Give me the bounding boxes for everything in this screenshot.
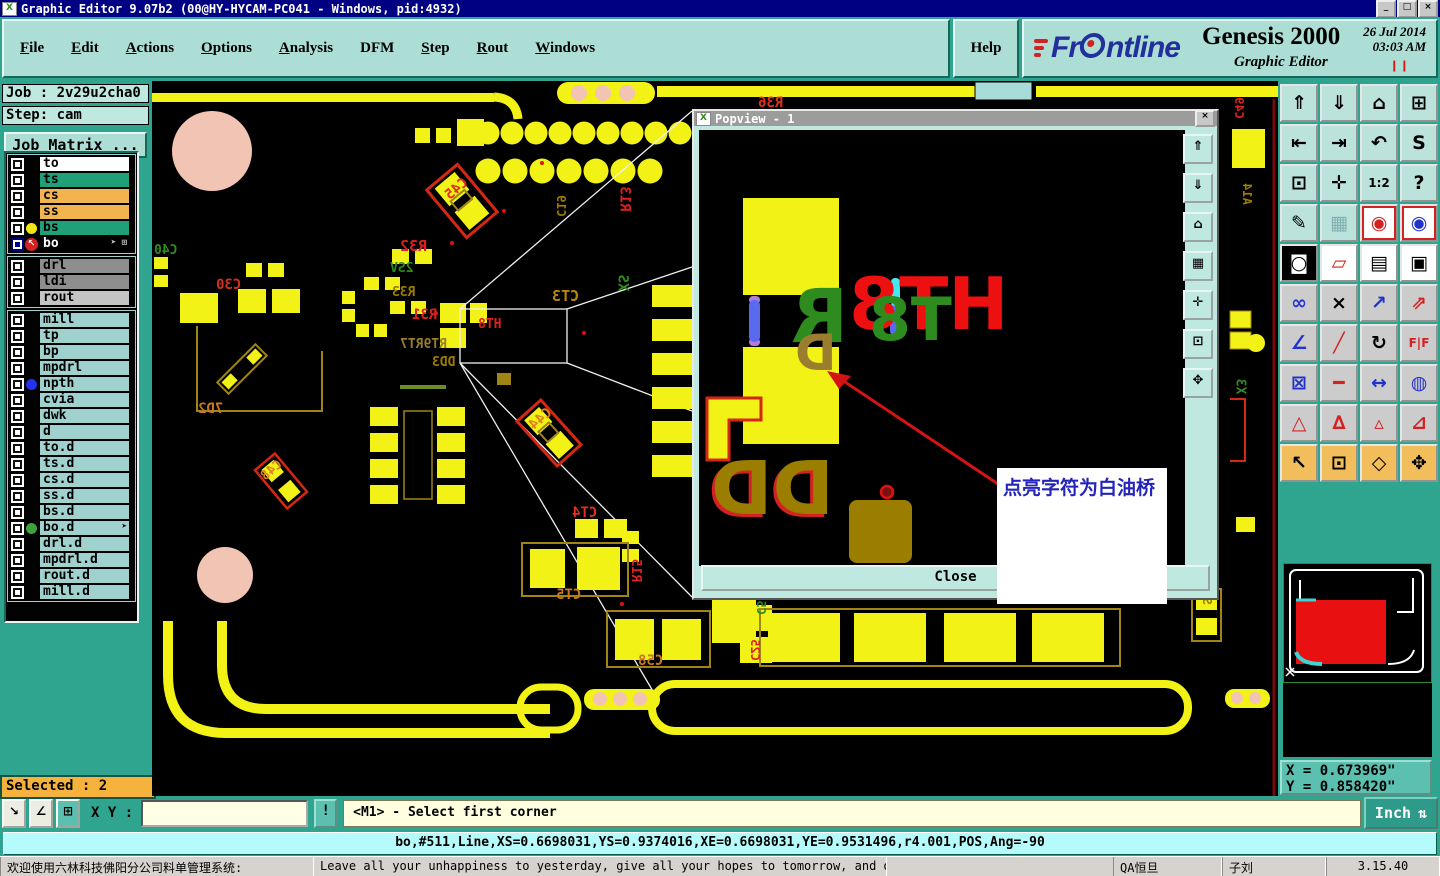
layer-row-ts: ts: [8, 172, 135, 188]
layer-dot-slot: [24, 206, 39, 219]
silkscreen-label-R33: R33: [392, 285, 415, 300]
tool-arc-mode-1[interactable]: △: [1280, 404, 1318, 442]
tool-slope-line[interactable]: ╱: [1320, 324, 1358, 362]
layer-checkbox-drl.d[interactable]: [11, 538, 24, 551]
layer-checkbox-drl[interactable]: [11, 260, 24, 273]
status-row: bo,#511,Line,XS=0.6698031,YS=0.9374016,X…: [0, 830, 1440, 856]
tool-pv-zoom-box[interactable]: ⊡: [1183, 329, 1213, 359]
layer-row-mill.d: mill.d: [8, 584, 135, 600]
tool-select-window[interactable]: ⊡: [1320, 444, 1358, 482]
tool-swap-pads[interactable]: ⊠: [1280, 364, 1318, 402]
layer-checkbox-d[interactable]: [11, 426, 24, 439]
tool-context-help[interactable]: ?: [1400, 164, 1438, 202]
layer-dot-slot: [24, 410, 39, 423]
silkscreen-label-C40: C40: [154, 243, 177, 258]
layer-checkbox-to[interactable]: [11, 158, 24, 171]
layer-name-bs[interactable]: bs: [39, 220, 130, 236]
layer-dot-slot: [24, 394, 39, 407]
work-layer-icon: ↖: [24, 238, 39, 251]
coord-x: X = 0.673969": [1286, 763, 1426, 779]
layer-group: totscsssbs↖bo➤ ⊞: [7, 154, 136, 254]
layer-name-drl[interactable]: drl: [39, 258, 130, 274]
tool-chain-select[interactable]: ∞: [1280, 284, 1318, 322]
layer-dot-slot: [24, 190, 39, 203]
layer-dot-slot: [24, 474, 39, 487]
tool-serpentine-view[interactable]: S: [1400, 124, 1438, 162]
element-status-line: bo,#511,Line,XS=0.6698031,YS=0.9374016,X…: [3, 832, 1437, 855]
layer-checkbox-mpdrl.d[interactable]: [11, 554, 24, 567]
tool-pan-right[interactable]: ⇥: [1320, 124, 1358, 162]
layer-name-bo[interactable]: bo➤ ⊞: [39, 236, 130, 252]
brand-panel: Frntline Genesis 2000 Graphic Editor 26 …: [1022, 19, 1438, 78]
tool-inverse-video[interactable]: ◙: [1280, 244, 1318, 282]
popview-window[interactable]: X Popview - 1 ×: [692, 109, 1219, 600]
tool-pan-left[interactable]: ⇤: [1280, 124, 1318, 162]
layer-checkbox-ldi[interactable]: [11, 276, 24, 289]
tool-delete-element[interactable]: ×: [1320, 284, 1358, 322]
layer-dot-slot: [24, 174, 39, 187]
layer-checkbox-ss.d[interactable]: [11, 490, 24, 503]
tool-tile-windows-xy[interactable]: ⊞: [1400, 84, 1438, 122]
layer-row-cs.d: cs.d: [8, 472, 135, 488]
silkscreen-label-C49: C49: [1232, 97, 1246, 119]
layer-dot-slot: [24, 314, 39, 327]
layer-dot-slot: [24, 554, 39, 567]
layer-row-to: to: [8, 156, 135, 172]
layer-name-to[interactable]: to: [39, 156, 130, 172]
board-minimap[interactable]: [1283, 563, 1432, 683]
layer-checkbox-ss[interactable]: [11, 206, 24, 219]
taskbar-segment-2[interactable]: 子刘: [1222, 857, 1326, 876]
silkscreen-label-C19: C19: [554, 195, 568, 217]
tool-setup-editor[interactable]: ✎: [1280, 204, 1318, 242]
taskbar-segment-1[interactable]: QA恒旦: [1113, 857, 1222, 876]
tool-net-view-a[interactable]: ◉: [1360, 204, 1398, 242]
popview-art-text: DD: [711, 452, 834, 526]
popview-art-text: T8: [869, 290, 952, 350]
layer-dot-slot: [24, 292, 39, 305]
graphic-editor-window: X Graphic Editor 9.07b2 (00@HY-HYCAM-PC0…: [0, 0, 1440, 876]
tool-zoom-margins[interactable]: ⊡: [1280, 164, 1318, 202]
layer-name-mill[interactable]: mill: [39, 312, 130, 328]
cursor-coordinates: X = 0.673969" Y = 0.858420": [1280, 760, 1432, 795]
taskbar-quote: Leave all your unhappiness to yesterday,…: [314, 857, 887, 876]
tool-grid: ⇑⇓⌂⊞⇤⇥↶S⊡✛1:2?✎▦◉◉◙▱▤▣∞×↗⇗∠╱↻F|F⊠━↔◍△∆▵⊿…: [1279, 83, 1439, 483]
taskbar-clock: 3.15.40: [1326, 857, 1440, 876]
silkscreen-label-R13: R13: [617, 186, 633, 211]
layer-dot-slot: [24, 458, 39, 471]
app-icon: X: [2, 2, 17, 16]
layer-checkbox-rout.d[interactable]: [11, 570, 24, 583]
menu-items: FileEditActionsOptionsAnalysisDFMStepRou…: [2, 19, 950, 78]
layer-row-bo.d: bo.d➤: [8, 520, 135, 536]
pause-indicator-icon: ❙❙: [1390, 59, 1410, 72]
logo-speed-lines-icon: [1034, 39, 1048, 57]
layer-checkbox-rout[interactable]: [11, 292, 24, 305]
layer-name-npth[interactable]: npth: [39, 376, 130, 392]
tool-copy-element[interactable]: ↗: [1360, 284, 1398, 322]
tool-arc-mode-4[interactable]: ⊿: [1400, 404, 1438, 442]
layer-name-mpdrl[interactable]: mpdrl: [39, 360, 130, 376]
layer-row-bp: bp: [8, 344, 135, 360]
silkscreen-label-CT3: CT3: [552, 287, 579, 305]
layer-name-drl.d[interactable]: drl.d: [39, 536, 130, 552]
layer-checkbox-ts.d[interactable]: [11, 458, 24, 471]
menu-help[interactable]: Help: [953, 19, 1019, 78]
layer-row-drl.d: drl.d: [8, 536, 135, 552]
layer-dot-slot: [24, 426, 39, 439]
tool-pan-center[interactable]: ✛: [1320, 164, 1358, 202]
sidebar: Job : 2v29u2cha0 Step: cam Job Matrix ..…: [0, 81, 152, 796]
title-bar: X Graphic Editor 9.07b2 (00@HY-HYCAM-PC0…: [0, 0, 1440, 17]
mode-grid-mode[interactable]: ⊞: [56, 799, 80, 828]
pcb-canvas[interactable]: R36C45C40C30R322SVR33R31CT3C19R13XSHT8RT…: [152, 81, 1278, 796]
units-arrow-icon: ⇅: [1418, 804, 1427, 822]
layer-row-drl: drl: [8, 258, 135, 274]
layer-row-bs.d: bs.d: [8, 504, 135, 520]
tool-measure-angle[interactable]: ∠: [1280, 324, 1318, 362]
mode-angle-mode[interactable]: ∠: [29, 799, 53, 828]
silkscreen-label-CT5: CT5: [556, 587, 581, 603]
layer-row-ldi: ldi: [8, 274, 135, 290]
layer-row-ss.d: ss.d: [8, 488, 135, 504]
silkscreen-label-DD3: DD3: [432, 355, 455, 370]
tool-merge-shapes[interactable]: ◍: [1400, 364, 1438, 402]
silkscreen-label-C58: C58: [638, 653, 663, 669]
tool-scale-1-2[interactable]: 1:2: [1360, 164, 1398, 202]
tool-reshape[interactable]: ▱: [1320, 244, 1358, 282]
layer-dot-slot: [24, 506, 39, 519]
tool-view-copy-up[interactable]: ⇑: [1280, 84, 1318, 122]
layer-row-d: d: [8, 424, 135, 440]
os-taskbar: 欢迎使用六林科技佛阳分公司料单管理系统: Leave all your unha…: [0, 856, 1440, 876]
silkscreen-label-R32: R32: [400, 237, 427, 255]
layer-name-cs.d[interactable]: cs.d: [39, 472, 130, 488]
xy-input[interactable]: [141, 800, 308, 827]
layer-row-cvia: cvia: [8, 392, 135, 408]
selected-count: Selected : 2: [0, 775, 156, 799]
menu-options[interactable]: Options: [201, 40, 252, 57]
layer-row-cs: cs: [8, 188, 135, 204]
layer-name-ss.d[interactable]: ss.d: [39, 488, 130, 504]
layer-row-rout: rout: [8, 290, 135, 306]
layer-dot-slot: [24, 538, 39, 551]
popview-close-icon[interactable]: ×: [1195, 110, 1215, 127]
silkscreen-label-7D2: 7D2: [198, 401, 223, 417]
layer-checkbox-bo.d[interactable]: [11, 522, 24, 535]
layer-group: drlldirout: [7, 256, 136, 308]
layer-dot-slot: [24, 346, 39, 359]
layer-row-bs: bs: [8, 220, 135, 236]
mode-buttons: ↘∠⊞: [2, 799, 80, 828]
right-toolbar: ⇑⇓⌂⊞⇤⇥↶S⊡✛1:2?✎▦◉◉◙▱▤▣∞×↗⇗∠╱↻F|F⊠━↔◍△∆▵⊿…: [1278, 81, 1440, 796]
layer-name-tp[interactable]: tp: [39, 328, 130, 344]
tool-previous-view[interactable]: ↶: [1360, 124, 1398, 162]
layer-checkbox-npth[interactable]: [11, 378, 24, 391]
silkscreen-label-C25: C25: [748, 639, 762, 661]
tool-pad-display[interactable]: ▣: [1400, 244, 1438, 282]
menu-step[interactable]: Step: [421, 40, 449, 57]
popview-icon: X: [696, 112, 711, 126]
command-row: ↘∠⊞ X Y : ! <M1> - Select first corner I…: [0, 796, 1440, 830]
layer-name-mpdrl.d[interactable]: mpdrl.d: [39, 552, 130, 568]
silkscreen-label-C30: C30: [216, 277, 241, 293]
job-label: Job : 2v29u2cha0: [2, 84, 149, 103]
layer-checkbox-bo[interactable]: [11, 238, 24, 251]
overview-panel: [1283, 563, 1432, 757]
menu-windows[interactable]: Windows: [535, 40, 595, 57]
layer-dot-slot: [24, 260, 39, 273]
tool-arc-mode-2[interactable]: ∆: [1320, 404, 1358, 442]
tool-move-element[interactable]: ⇗: [1400, 284, 1438, 322]
tool-pv-copy-down[interactable]: ⇓: [1183, 173, 1213, 203]
layer-dot-slot: [24, 490, 39, 503]
menu-edit[interactable]: Edit: [71, 40, 99, 57]
layer-name-rout[interactable]: rout: [39, 290, 130, 306]
layer-name-to.d[interactable]: to.d: [39, 440, 130, 456]
layer-name-bs.d[interactable]: bs.d: [39, 504, 130, 520]
units-button[interactable]: Inch⇅: [1364, 797, 1438, 829]
silkscreen-label-X3: X3: [1232, 379, 1247, 395]
layer-name-ss[interactable]: ss: [39, 204, 130, 220]
layer-row-rout.d: rout.d: [8, 568, 135, 584]
tool-ruler[interactable]: ▤: [1360, 244, 1398, 282]
silkscreen-label-2SV: 2SV: [390, 261, 413, 276]
maximize-button[interactable]: □: [1397, 0, 1417, 18]
popview-side-toolbar: ⇑⇓⌂▦✛⊡✥: [1183, 134, 1213, 398]
tool-pv-home[interactable]: ⌂: [1183, 212, 1213, 242]
frontline-logo: Frntline: [1034, 31, 1180, 65]
layer-row-ss: ss: [8, 204, 135, 220]
coord-y: Y = 0.858420": [1286, 779, 1426, 795]
step-label: Step: cam: [2, 106, 149, 125]
tool-view-copy-down[interactable]: ⇓: [1320, 84, 1358, 122]
layer-checkbox-bp[interactable]: [11, 346, 24, 359]
silkscreen-label-RT9RT7: RT9RT7: [400, 337, 447, 352]
layer-row-icons: ➤: [122, 521, 127, 534]
layer-row-to.d: to.d: [8, 440, 135, 456]
layer-name-bp[interactable]: bp: [39, 344, 130, 360]
menu-file[interactable]: File: [20, 40, 44, 57]
popview-title: Popview - 1: [715, 112, 794, 126]
popview-title-bar[interactable]: X Popview - 1 ×: [694, 111, 1217, 126]
silkscreen-label-HT8: HT8: [478, 317, 501, 332]
tool-measure-distance[interactable]: ↔: [1360, 364, 1398, 402]
layer-row-tp: tp: [8, 328, 135, 344]
layer-row-mill: mill: [8, 312, 135, 328]
layer-checkbox-mill.d[interactable]: [11, 586, 24, 599]
tool-snap-grid[interactable]: ▦: [1320, 204, 1358, 242]
product-name: Genesis 2000: [1202, 23, 1340, 51]
layer-checkbox-bs.d[interactable]: [11, 506, 24, 519]
tool-break-line[interactable]: ━: [1320, 364, 1358, 402]
layer-checkbox-ts[interactable]: [11, 174, 24, 187]
layer-dot-icon: [24, 222, 39, 235]
tool-select-single[interactable]: ↖: [1280, 444, 1318, 482]
silkscreen-label-A14: A14: [1240, 183, 1254, 205]
layer-checkbox-to.d[interactable]: [11, 442, 24, 455]
layer-checkbox-tp[interactable]: [11, 330, 24, 343]
layer-dot-slot: [24, 330, 39, 343]
minimize-button[interactable]: _: [1376, 0, 1396, 18]
tool-select-reference[interactable]: ✥: [1400, 444, 1438, 482]
tool-pv-pan[interactable]: ✥: [1183, 368, 1213, 398]
logo-o-icon: [1078, 33, 1107, 58]
layer-row-npth: npth: [8, 376, 135, 392]
layer-group: milltpbpmpdrlnpthcviadwkdto.dts.dcs.dss.…: [7, 310, 136, 602]
taskbar-app-title[interactable]: 欢迎使用六林科技佛阳分公司料单管理系统:: [0, 857, 314, 876]
layer-dot-icon: [24, 378, 39, 391]
layer-row-mpdrl.d: mpdrl.d: [8, 552, 135, 568]
layer-dot-slot: [24, 442, 39, 455]
tool-pv-grid[interactable]: ▦: [1183, 251, 1213, 281]
close-button[interactable]: ×: [1418, 0, 1438, 18]
layer-row-dwk: dwk: [8, 408, 135, 424]
tool-pv-center[interactable]: ✛: [1183, 290, 1213, 320]
layer-checkbox-mpdrl[interactable]: [11, 362, 24, 375]
layer-dot-slot: [24, 586, 39, 599]
xy-label: X Y :: [91, 805, 133, 821]
tool-net-view-b[interactable]: ◉: [1400, 204, 1438, 242]
menu-analysis[interactable]: Analysis: [279, 40, 333, 57]
layer-checkbox-cs.d[interactable]: [11, 474, 24, 487]
layer-dot-slot: [24, 276, 39, 289]
layer-checkbox-bs[interactable]: [11, 222, 24, 235]
layer-checkbox-cvia[interactable]: [11, 394, 24, 407]
tool-arc-mode-3[interactable]: ▵: [1360, 404, 1398, 442]
layer-name-ts.d[interactable]: ts.d: [39, 456, 130, 472]
menu-rout[interactable]: Rout: [477, 40, 509, 57]
alert-button[interactable]: !: [314, 799, 337, 828]
silkscreen-label-CT4: CT4: [572, 505, 597, 521]
mode-pointer-mode[interactable]: ↘: [2, 799, 26, 828]
layer-checkbox-mill[interactable]: [11, 314, 24, 327]
layer-row-mpdrl: mpdrl: [8, 360, 135, 376]
layer-dot-icon: [24, 522, 39, 535]
layer-name-d[interactable]: d: [39, 424, 130, 440]
tool-mirror[interactable]: F|F: [1400, 324, 1438, 362]
layer-dot-slot: [24, 158, 39, 171]
layer-list: totscsssbs↖bo➤ ⊞drlldiroutmilltpbpmpdrln…: [4, 151, 139, 623]
prompt-message: <M1> - Select first corner: [343, 800, 1361, 827]
layer-dot-slot: [24, 362, 39, 375]
tool-select-polygon[interactable]: ◇: [1360, 444, 1398, 482]
layer-dot-slot: [24, 570, 39, 583]
tool-rotate[interactable]: ↻: [1360, 324, 1398, 362]
layer-name-rout.d[interactable]: rout.d: [39, 568, 130, 584]
layer-name-dwk[interactable]: dwk: [39, 408, 130, 424]
layer-row-ts.d: ts.d: [8, 456, 135, 472]
product-subtitle: Graphic Editor: [1234, 54, 1328, 71]
menu-dfm[interactable]: DFM: [360, 40, 394, 57]
datetime: 26 Jul 201403:03 AM: [1344, 24, 1426, 54]
menu-actions[interactable]: Actions: [126, 40, 174, 57]
layer-name-ldi[interactable]: ldi: [39, 274, 130, 290]
layer-row-icons: ➤ ⊞: [111, 237, 127, 250]
annotation-note: 点亮字符为白油桥: [997, 468, 1167, 604]
layer-name-bo.d[interactable]: bo.d➤: [39, 520, 130, 536]
layer-name-cvia[interactable]: cvia: [39, 392, 130, 408]
layer-checkbox-dwk[interactable]: [11, 410, 24, 423]
window-title: Graphic Editor 9.07b2 (00@HY-HYCAM-PC041…: [21, 2, 462, 16]
layer-row-bo: ↖bo➤ ⊞: [8, 236, 135, 252]
silkscreen-label-R31: R31: [412, 307, 437, 323]
menu-bar: FileEditActionsOptionsAnalysisDFMStepRou…: [0, 17, 1440, 81]
silkscreen-label-R15: R15: [628, 559, 643, 582]
layer-name-cs[interactable]: cs: [39, 188, 130, 204]
layer-name-mill.d[interactable]: mill.d: [39, 584, 130, 600]
layer-name-ts[interactable]: ts: [39, 172, 130, 188]
tool-home-view[interactable]: ⌂: [1360, 84, 1398, 122]
popview-art-text: D: [795, 328, 837, 378]
silkscreen-label-XS: XS: [614, 275, 630, 292]
tool-pv-copy-up[interactable]: ⇑: [1183, 134, 1213, 164]
layer-checkbox-cs[interactable]: [11, 190, 24, 203]
